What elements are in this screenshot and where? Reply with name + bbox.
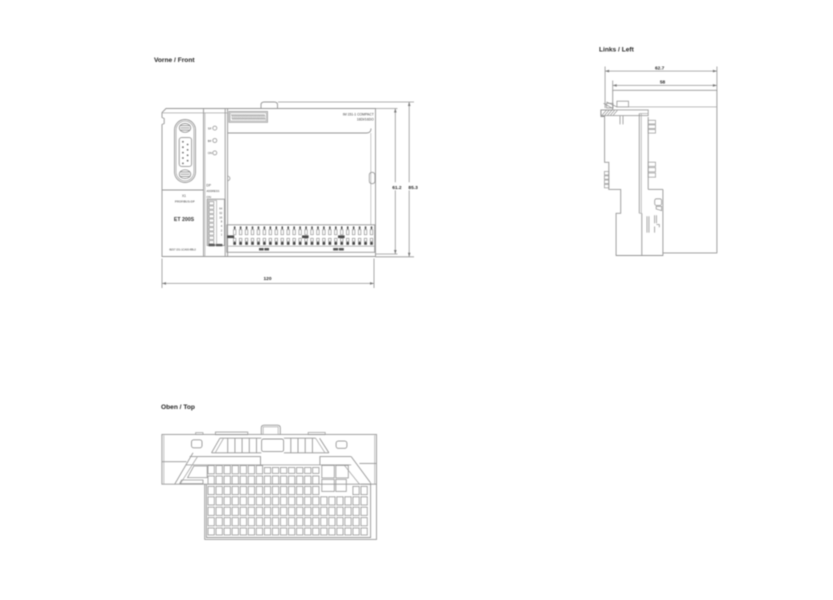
svg-text:PROFIBUS-DP: PROFIBUS-DP [175,199,195,203]
svg-text:ADDRESS: ADDRESS [206,189,219,193]
svg-text:16: 16 [219,215,222,219]
svg-text:Vorne / Front: Vorne / Front [154,57,195,64]
svg-text:6ES7 151-1CA00-8BL0: 6ES7 151-1CA00-8BL0 [169,247,196,251]
svg-text:IM 151-1 COMPACT: IM 151-1 COMPACT [343,113,374,117]
svg-text:85.3: 85.3 [408,185,418,191]
svg-text:X1: X1 [182,194,186,198]
svg-text:SF: SF [208,126,212,130]
svg-text:64: 64 [219,207,222,211]
svg-text:32: 32 [219,211,222,215]
svg-text:DP: DP [206,183,211,187]
svg-text:ON: ON [206,195,211,199]
svg-text:BF: BF [208,139,212,143]
svg-text:ET 200S: ET 200S [174,217,195,223]
svg-text:16DI/16DO: 16DI/16DO [357,117,374,121]
svg-text:61.2: 61.2 [392,185,402,191]
svg-text:ON: ON [208,151,213,155]
svg-text:58: 58 [660,80,666,86]
svg-text:Oben / Top: Oben / Top [161,404,195,411]
svg-text:Links / Left: Links / Left [599,47,635,54]
svg-text:120: 120 [263,276,271,282]
svg-text:62.7: 62.7 [655,65,665,71]
